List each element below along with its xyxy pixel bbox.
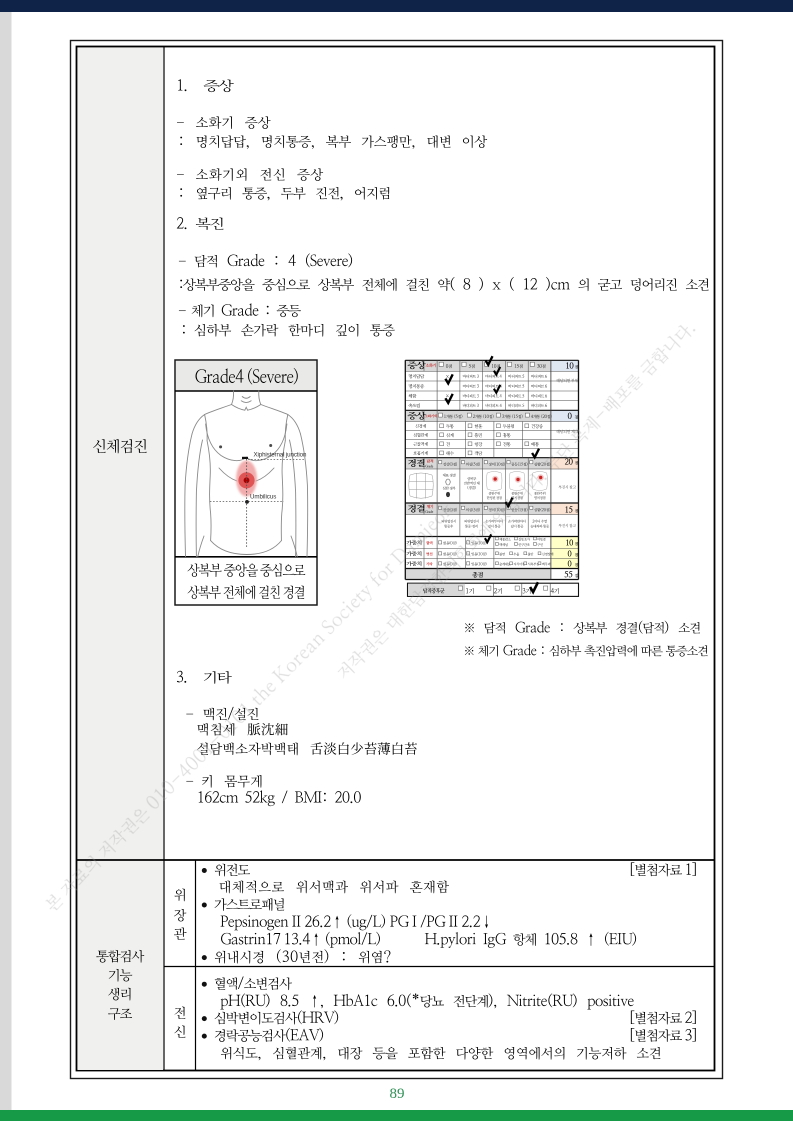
svg-text:89: 89 — [390, 1086, 405, 1102]
svg-text:Xiphisternal junction: Xiphisternal junction — [254, 452, 307, 459]
svg-text:Umbilicus: Umbilicus — [250, 493, 276, 500]
